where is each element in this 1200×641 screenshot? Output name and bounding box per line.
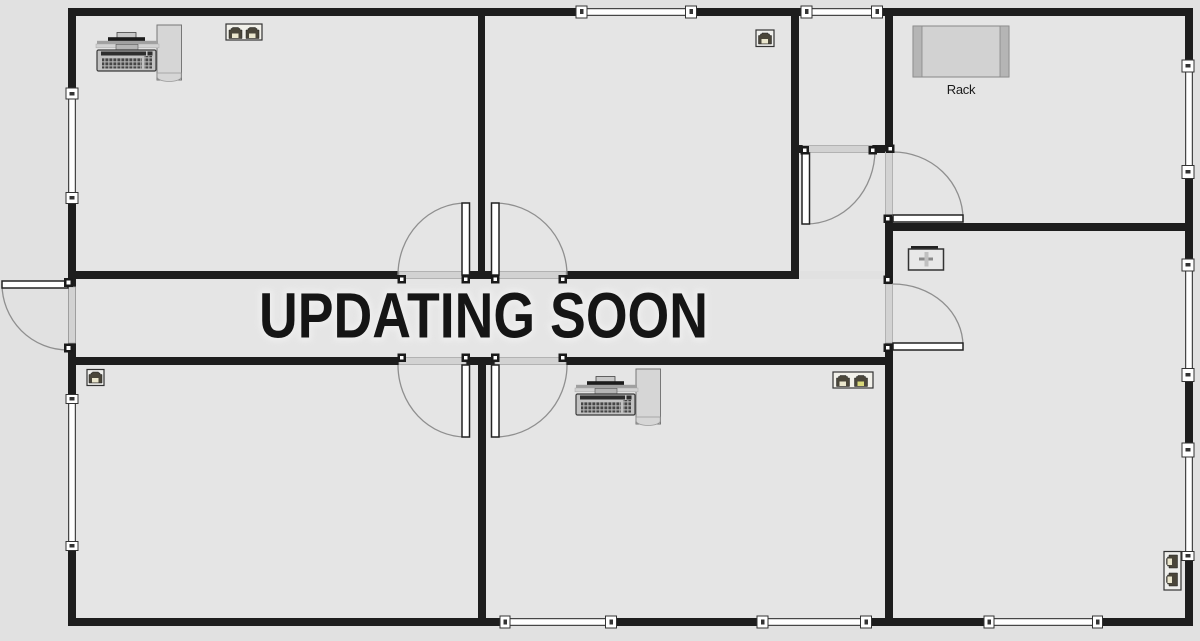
svg-text:Rack: Rack <box>947 82 976 97</box>
svg-text:UPDATING SOON: UPDATING SOON <box>259 280 708 352</box>
